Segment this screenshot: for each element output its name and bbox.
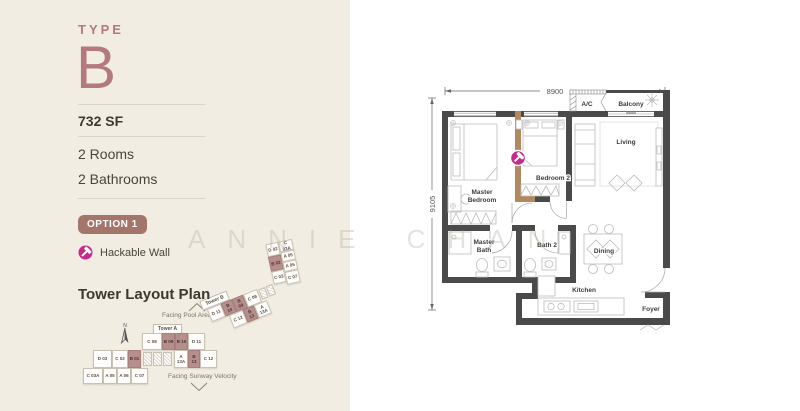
core-block (163, 352, 172, 366)
unit-a-c02: C 02 (112, 350, 128, 368)
hammer-icon (511, 151, 526, 166)
option-badge[interactable]: OPTION 1 (78, 215, 147, 234)
core-block (143, 352, 152, 366)
core-block (153, 352, 162, 366)
divider (78, 104, 205, 105)
label-dining: Dining (594, 248, 614, 255)
floor-plan: 8900 9105 (420, 78, 720, 350)
label-master-bath-2: Bath (477, 247, 491, 254)
unit-info: TYPE B 732 SF 2 Rooms 2 Bathrooms OPTION… (78, 22, 318, 303)
unit-a-b09: B 09 (162, 333, 175, 350)
label-master-bath-1: Master (474, 239, 495, 246)
hackable-wall-label: Hackable Wall (100, 247, 170, 259)
label-balcony: Balcony (618, 101, 644, 108)
unit-a-b10: B 10 (175, 333, 188, 350)
chevron-down-icon (190, 382, 208, 392)
windows (454, 112, 654, 116)
label-ac: A/C (581, 101, 593, 108)
unit-a-c07: C 07 (131, 368, 148, 384)
divider (78, 136, 205, 137)
unit-a-a13a: A 13A (174, 350, 188, 368)
unit-a-c08: C 08 (142, 333, 162, 350)
plant-icon (645, 93, 659, 107)
facing-pool-label: Facing Pool Area (162, 312, 212, 319)
living-furniture (575, 122, 662, 191)
unit-a-a06: A 06 (117, 368, 131, 384)
unit-a-b01: B 01 (128, 350, 141, 368)
unit-a-c03a: C 03A (83, 368, 103, 384)
hammer-icon (78, 245, 93, 260)
tower-layout-heading: Tower Layout Plan (78, 286, 318, 303)
unit-a-c12: C 12 (200, 350, 217, 368)
label-foyer: Foyer (642, 306, 660, 313)
hackable-wall-legend: Hackable Wall (78, 245, 318, 260)
unit-a-a05: A 05 (103, 368, 117, 384)
unit-a-d03: D 03 (93, 350, 112, 368)
unit-area: 732 SF (78, 113, 318, 129)
label-bath2: Bath 2 (537, 242, 557, 249)
dim-height-value: 9105 (428, 196, 437, 213)
dim-width-value: 8900 (547, 87, 564, 96)
type-value: B (76, 39, 318, 96)
facing-sunway-label: Facing Sunway Velocity (168, 373, 237, 380)
unit-a-d11: D 11 (188, 333, 205, 350)
label-kitchen: Kitchen (572, 287, 596, 294)
label-master-bedroom-1: Master (472, 189, 493, 196)
label-living: Living (616, 139, 635, 146)
floorplan-page: { "panel": { "type_label": "TYPE", "type… (0, 0, 800, 411)
unit-a-b13: B 13 (188, 350, 200, 368)
divider (78, 198, 205, 199)
label-master-bedroom-2: Bedroom (468, 197, 497, 204)
bathrooms-count: 2 Bathrooms (78, 171, 318, 187)
label-bedroom2: Bedroom 2 (536, 175, 570, 182)
rooms-count: 2 Rooms (78, 146, 318, 162)
